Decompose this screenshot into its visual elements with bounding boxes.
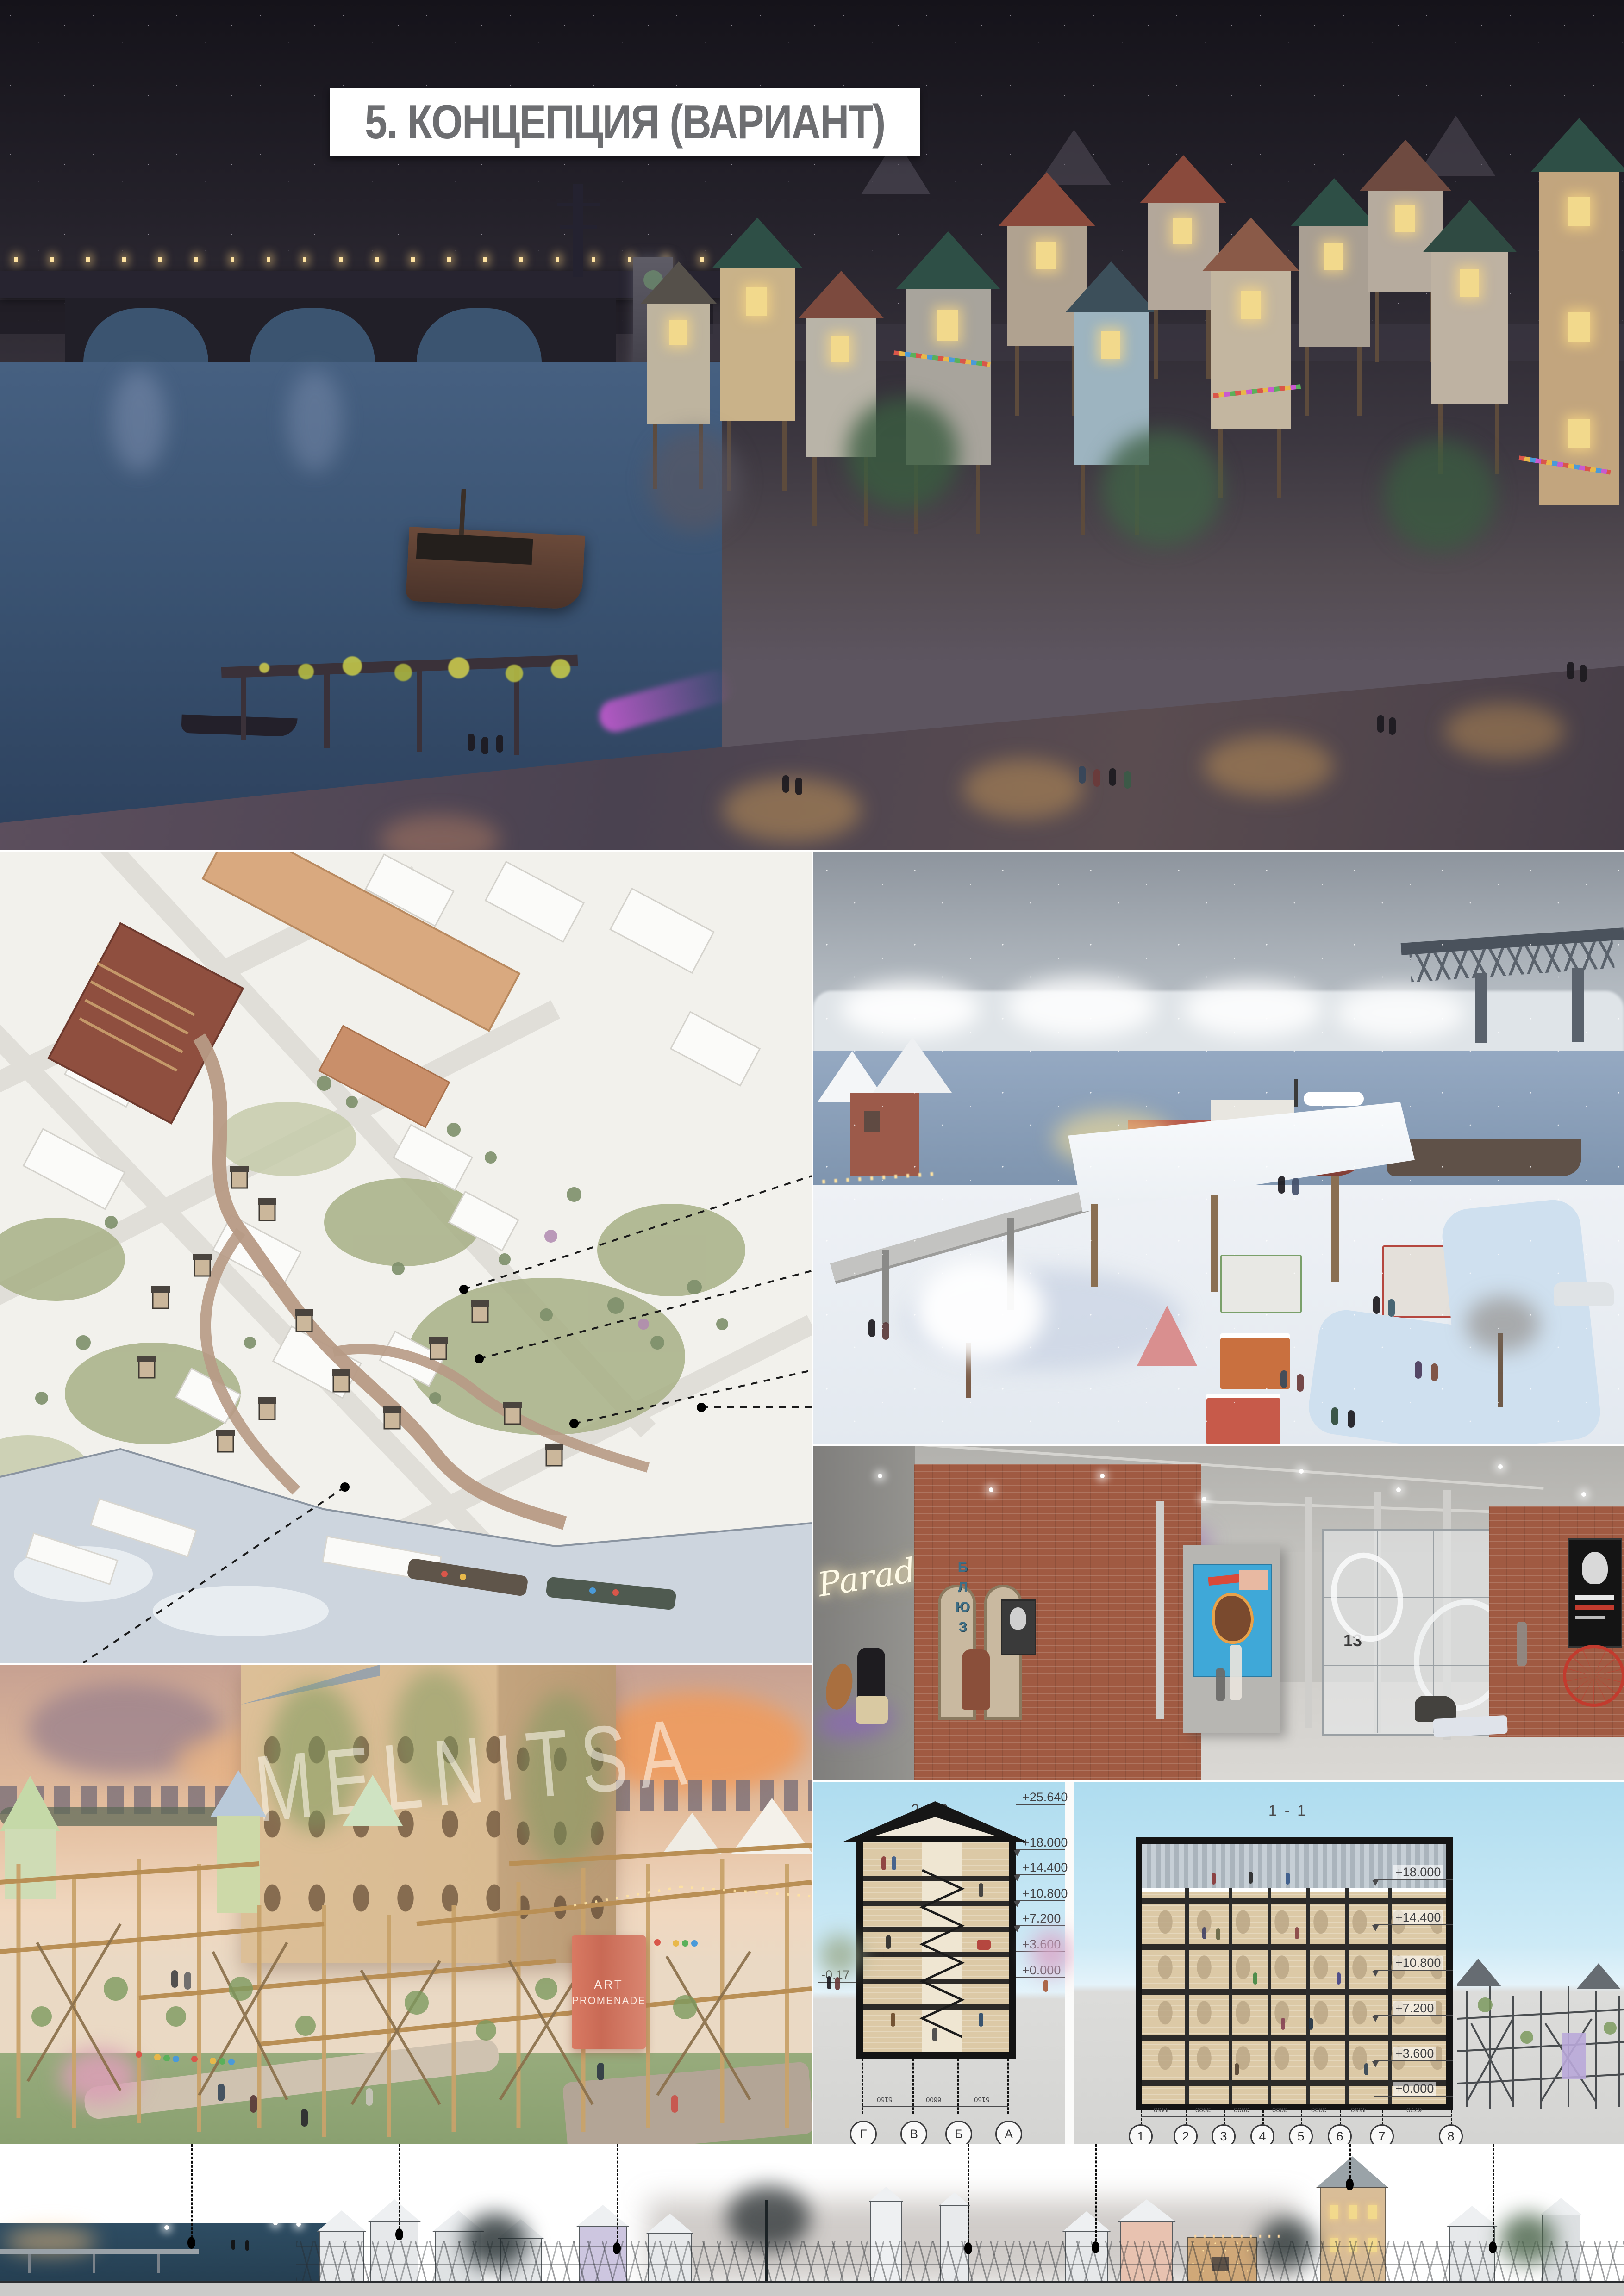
black-poster (1568, 1538, 1622, 1648)
dimension-text: 5150 (877, 2096, 892, 2103)
house-stilt (782, 421, 787, 491)
section-label: 1 - 1 (1268, 1802, 1307, 1819)
pano-leader (1349, 2144, 1351, 2182)
house-roof (1360, 140, 1451, 191)
lit-window (1568, 419, 1590, 448)
grid-bubble: 2 (1174, 2124, 1198, 2144)
grid-bubble-label: 1 (1137, 2129, 1144, 2144)
grid-bubble: 1 (1129, 2124, 1153, 2144)
house-roof (1065, 261, 1156, 312)
section-figure (1337, 1972, 1341, 1985)
person (1580, 665, 1587, 682)
pano-pier (0, 2249, 199, 2254)
grid-bubble-label: 3 (1220, 2129, 1227, 2144)
pano-fairy-lights (1194, 2235, 1287, 2238)
rusty-barge (406, 527, 585, 610)
bridge-arch (83, 308, 208, 363)
person (1093, 769, 1100, 787)
pano-leader (617, 2144, 618, 2246)
seated-visitor (857, 1648, 885, 1703)
poster-text-line (1575, 1616, 1605, 1619)
grid-line (1451, 2110, 1452, 2124)
elevation-tick (1372, 1925, 1379, 1931)
section-figure (1249, 1872, 1253, 1884)
person (597, 2063, 604, 2080)
grid-bubble-label: 4 (1259, 2129, 1266, 2144)
painting-pink-field (1239, 1570, 1268, 1590)
pergola-post (324, 669, 330, 748)
elevation-line (1374, 1924, 1453, 1925)
pano-leader (1095, 2144, 1097, 2245)
pedestrian (835, 1977, 840, 1990)
grid-line (1186, 2110, 1187, 2124)
pano-lamp (273, 2221, 278, 2225)
pano-house-roof (1446, 2206, 1498, 2227)
pano-person (245, 2240, 249, 2251)
pano-house-roof (317, 2210, 367, 2232)
house-stilt (1495, 404, 1499, 474)
house-roof (640, 261, 717, 304)
bridge-arch (250, 308, 375, 363)
spotlight (1202, 1497, 1206, 1501)
grid-line (1141, 2110, 1142, 2124)
deck-light-pool (963, 759, 1083, 819)
elevation-line (1374, 2060, 1453, 2061)
person (301, 2109, 308, 2127)
elevation-tick (1372, 2016, 1379, 2022)
elevation-mark: +0.000 (1393, 2082, 1436, 2096)
person (250, 2095, 257, 2113)
context-tree (819, 1935, 861, 1976)
tree-canopy (847, 398, 958, 509)
bw-portrait-artwork (1001, 1599, 1036, 1655)
spotlight (989, 1487, 993, 1492)
stilt-tower-house (1536, 118, 1622, 505)
spotlight (1100, 1474, 1105, 1478)
lit-window (1568, 312, 1590, 342)
house-roof (999, 172, 1095, 226)
person (481, 737, 488, 754)
pano-leader (968, 2144, 969, 2246)
dimension-text: 5150 (974, 2096, 989, 2103)
cyclist (671, 2095, 678, 2113)
grid-bubble-label: 5 (1297, 2129, 1304, 2144)
house-stilt (1154, 310, 1158, 379)
elevation-mark: +10.800 (1022, 1886, 1068, 1901)
person (1109, 768, 1116, 786)
pano-pier-leg (93, 2254, 95, 2273)
grid-bubble: Б (945, 2121, 972, 2144)
elevation-tick (1014, 1875, 1020, 1881)
elevation-mark: +7.200 (1022, 1911, 1061, 1926)
grid-bubble: 5 (1289, 2124, 1313, 2144)
person (496, 735, 503, 753)
spotlight (1396, 1487, 1401, 1492)
pano-house-roof (1540, 2198, 1583, 2215)
person (1389, 717, 1396, 735)
scaffold-tower-roof (1457, 1959, 1501, 1986)
pano-mill-window (1368, 2205, 1377, 2219)
house-roof (1423, 200, 1517, 252)
grid-line (1262, 2110, 1264, 2124)
deck-light-pool (1444, 703, 1565, 759)
grid-line (1301, 2110, 1302, 2124)
banner-text-line2: PROMENADE (572, 1995, 646, 2007)
section-figure (1235, 2063, 1239, 2075)
section-2-2-drawing: 2 - 2 (813, 1782, 1065, 2144)
elevation-mark: +18.000 (1393, 1865, 1443, 1879)
pano-leader-dot (1346, 2178, 1354, 2190)
dimension-text: 3900 (1234, 2106, 1249, 2114)
vertical-letter-sign: БЛЮЗ (955, 1560, 970, 1639)
panel-panorama-elevation (0, 2144, 1624, 2296)
lit-window (831, 336, 849, 362)
elevation-tick (1372, 2061, 1379, 2067)
grid-bubble: 4 (1250, 2124, 1274, 2144)
section-figure (886, 1935, 891, 1949)
grid-bubble: А (995, 2121, 1022, 2144)
dimension-text: 6600 (926, 2096, 941, 2103)
bridge-deck (0, 271, 722, 298)
grid-bubble-label: Б (955, 2127, 963, 2141)
person (171, 1970, 178, 1988)
deck-light-pool (722, 778, 861, 842)
pano-leader-dot (395, 2228, 403, 2240)
guitarist (962, 1649, 990, 1710)
person (184, 1972, 191, 1990)
lit-window (746, 287, 767, 316)
scaffold-tower-roof (1577, 1963, 1620, 1989)
scaffolding-structure (0, 1665, 812, 2144)
pink-tree (1031, 1930, 1072, 1976)
lit-window (1101, 331, 1120, 359)
title-badge: 5. КОНЦЕПЦИЯ (ВАРИАНТ) (330, 88, 920, 156)
pano-house-roof (576, 2205, 630, 2227)
purple-drape (1562, 2033, 1586, 2079)
pano-leader (191, 2144, 193, 2242)
poster-text-line (1575, 1605, 1614, 1610)
house-stilt (1081, 465, 1085, 535)
poster-face (1582, 1552, 1608, 1584)
section-1-1-drawing: 1 - 1 (1074, 1782, 1624, 2144)
elevation-line (1016, 1849, 1065, 1850)
house-roof (1140, 155, 1227, 203)
elevation-line (1374, 2015, 1453, 2016)
pano-bare-tree-crown (727, 2186, 810, 2251)
bridge-arch (417, 308, 542, 363)
elevation-line (1016, 1874, 1065, 1875)
dimension-line (1141, 2116, 1452, 2117)
red-curtain-banner: ART PROMENADE (572, 1935, 646, 2049)
water-light-reflection (287, 370, 343, 472)
pano-person (231, 2240, 235, 2250)
pergola-vines (259, 663, 269, 673)
panel-mill-playground-render: MELNITSA (0, 1665, 812, 2144)
grid-bubble-label: 8 (1447, 2129, 1454, 2144)
pano-lamp (296, 2222, 301, 2227)
pedestrian (827, 1976, 831, 1989)
stilt-house (1428, 200, 1512, 404)
pano-leader-dot (187, 2237, 195, 2249)
gallery-column (1305, 1497, 1312, 1728)
grid-bubble-label: В (910, 2127, 918, 2141)
pano-lamp (164, 2225, 169, 2230)
section-building (856, 1836, 1016, 2059)
section-figure (881, 1856, 886, 1870)
section-figure (1286, 1873, 1290, 1885)
bridge-lamps (14, 257, 708, 262)
panel-axonometric-masterplan (0, 852, 812, 1663)
lit-window (1395, 205, 1415, 232)
person (782, 775, 789, 793)
panel-gallery-interior: Paradise БЛЮЗ 13 (813, 1446, 1624, 1780)
grid-bubble: В (900, 2121, 927, 2144)
cyclist (1043, 1980, 1048, 1992)
masterplan-drawing (0, 852, 812, 1663)
bridge-arch-block (65, 298, 616, 363)
bicycle-wheel-sculpture (1563, 1645, 1624, 1707)
elevation-line (1374, 2096, 1453, 2097)
person (1079, 766, 1086, 784)
elevation-tick (1014, 1850, 1020, 1856)
poster-text-line (1575, 1595, 1614, 1600)
stilt-house (717, 218, 798, 421)
gallery-column (1156, 1501, 1164, 1719)
water-light-reflection (111, 370, 167, 472)
elevation-tick (1372, 1971, 1379, 1977)
dimension-text: 3900 (1311, 2106, 1326, 2114)
person (795, 778, 802, 795)
lit-window (1324, 243, 1343, 270)
house-roof (1531, 118, 1624, 172)
grid-bubble: 8 (1439, 2124, 1463, 2144)
bare-tree (648, 430, 741, 532)
pano-house-roof (368, 2199, 421, 2222)
elevation-tick (1014, 1901, 1020, 1907)
section-figure (891, 2013, 895, 2027)
pano-house-roof (869, 2187, 903, 2202)
grid-bubble-label: А (1005, 2127, 1013, 2141)
section-figure (1364, 2063, 1368, 2075)
pano-house-roof (938, 2192, 971, 2206)
house-stilt (1357, 347, 1362, 416)
grid-bubble-label: 7 (1378, 2129, 1385, 2144)
lit-window (937, 310, 958, 341)
grid-line (1340, 2110, 1341, 2124)
elevation-mark: +14.400 (1393, 1910, 1443, 1925)
section-figure (1295, 1927, 1299, 1939)
dimension-text: 4450 (1154, 2106, 1169, 2114)
elevation-mark: +7.200 (1393, 2001, 1436, 2016)
pano-leader-dot (964, 2242, 972, 2254)
grid-bubble: Г (850, 2121, 877, 2144)
lit-window (1036, 242, 1056, 269)
pano-mill-window (1349, 2205, 1357, 2219)
stilt-house (644, 261, 713, 424)
house-roof (1202, 218, 1300, 271)
pano-leader (1493, 2144, 1494, 2245)
dimension-text: 4550 (1351, 2106, 1366, 2114)
spotlight (1299, 1469, 1304, 1474)
barge-hold (416, 533, 533, 565)
pano-tree (1259, 2218, 1315, 2269)
house-stilt (812, 457, 817, 526)
red-armchair (977, 1940, 991, 1950)
snowfall-overlay (813, 852, 1624, 1444)
grid-bubble-label: 6 (1336, 2129, 1343, 2144)
section-figure (932, 2028, 937, 2041)
pano-green-tree (1500, 2214, 1555, 2265)
elevation-line (1374, 1879, 1453, 1880)
visitor (1517, 1622, 1527, 1666)
artist-rug (1433, 1715, 1508, 1737)
section-figure (979, 1883, 983, 1897)
power-pylon-arm (557, 203, 600, 206)
pergola-post (241, 671, 246, 740)
pano-leader-dot (1489, 2241, 1497, 2253)
person (366, 2088, 373, 2106)
stilt-house (1295, 178, 1373, 347)
person (1377, 715, 1384, 733)
portrait-face (1010, 1607, 1026, 1630)
elevation-mark: +25.640 (1022, 1790, 1068, 1804)
lit-window (1568, 197, 1590, 226)
elevation-mark: +3.600 (1393, 2047, 1436, 2061)
scaffold-towers (1457, 1954, 1624, 2111)
visitor (1230, 1645, 1242, 1700)
elevation-tick (1372, 1880, 1379, 1886)
pano-leader-dot (613, 2242, 621, 2254)
grid-bubble: 6 (1328, 2124, 1352, 2144)
house-stilt (1305, 347, 1309, 416)
house-stilt (1277, 429, 1281, 498)
grid-line (1224, 2110, 1225, 2124)
painting-head-motif (1212, 1593, 1254, 1644)
person (468, 734, 475, 751)
grid-bubble-label: Г (860, 2127, 867, 2141)
spotlight (1498, 1464, 1503, 1469)
pouf-seat (856, 1696, 888, 1724)
grid-bubble: 7 (1370, 2124, 1394, 2144)
panel-hero-night-waterfront: 5. КОНЦЕПЦИЯ (ВАРИАНТ) (0, 0, 1624, 850)
pano-leader (399, 2144, 400, 2233)
power-pylon (573, 184, 583, 277)
pano-leader-dot (1092, 2241, 1099, 2253)
power-pylon-arm (560, 225, 597, 229)
elevation-line (1016, 1900, 1065, 1901)
section-figure (1216, 1928, 1220, 1940)
elevation-mark: +10.800 (1393, 1956, 1443, 1970)
house-roof (896, 231, 1000, 289)
deck-light-pool (1204, 736, 1333, 796)
house-stilt (1015, 346, 1019, 416)
dimension-text: 6770 (1406, 2106, 1422, 2114)
elevation-line (1374, 1970, 1453, 1971)
section-figure (979, 2013, 983, 2027)
grid-line (1382, 2110, 1383, 2124)
dimension-text: 3900 (1195, 2106, 1211, 2114)
grid-bubble-label: 2 (1182, 2129, 1189, 2144)
panel-sections: 2 - 2 (813, 1782, 1624, 2144)
visitor-child (1216, 1668, 1225, 1701)
elevation-line (1016, 1925, 1065, 1926)
lit-window (1173, 218, 1192, 244)
pergola-post (514, 663, 519, 755)
house-stilt (976, 465, 980, 534)
elevation-mark: +18.000 (1022, 1836, 1068, 1850)
banner-text-line1: ART (594, 1978, 624, 1992)
panel-winter-scene (813, 852, 1624, 1444)
spotlight (878, 1474, 882, 1478)
lit-window (1241, 291, 1261, 319)
lit-window (1460, 269, 1479, 297)
tree-canopy (1102, 430, 1222, 546)
presentation-board: 5. КОНЦЕПЦИЯ (ВАРИАНТ) (0, 0, 1624, 2296)
pano-pier-leg (157, 2254, 160, 2273)
pano-tree (463, 2214, 528, 2269)
section-figure (1212, 1873, 1216, 1885)
section-figure (1309, 2018, 1313, 2030)
person (218, 2084, 225, 2101)
section-figure (892, 1856, 896, 1870)
elevation-line (1016, 1804, 1065, 1805)
house-roof (712, 218, 803, 268)
pano-pier-leg (28, 2254, 31, 2273)
grid-bubble: 3 (1212, 2124, 1236, 2144)
spotlight (1581, 1492, 1586, 1497)
pergola-post (417, 666, 422, 752)
section-figure (1281, 2018, 1285, 2030)
house-stilt (1375, 292, 1379, 362)
elevation-mark: +14.400 (1022, 1860, 1068, 1875)
section-figure (1202, 1927, 1206, 1939)
pano-mill-window (1330, 2205, 1338, 2219)
section-figure (1253, 1972, 1257, 1985)
dimension-text: 3900 (1272, 2106, 1287, 2114)
elevation-tick (1014, 1926, 1020, 1932)
house-roof (799, 271, 884, 318)
lit-window (669, 320, 687, 345)
page-title: 5. КОНЦЕПЦИЯ (ВАРИАНТ) (365, 95, 885, 150)
person (1124, 771, 1131, 789)
pano-ground (0, 2281, 1624, 2296)
dimension-line (862, 2106, 1008, 2107)
elevation-line (1016, 1977, 1065, 1978)
person (1567, 662, 1574, 679)
tree-canopy (1384, 440, 1495, 551)
